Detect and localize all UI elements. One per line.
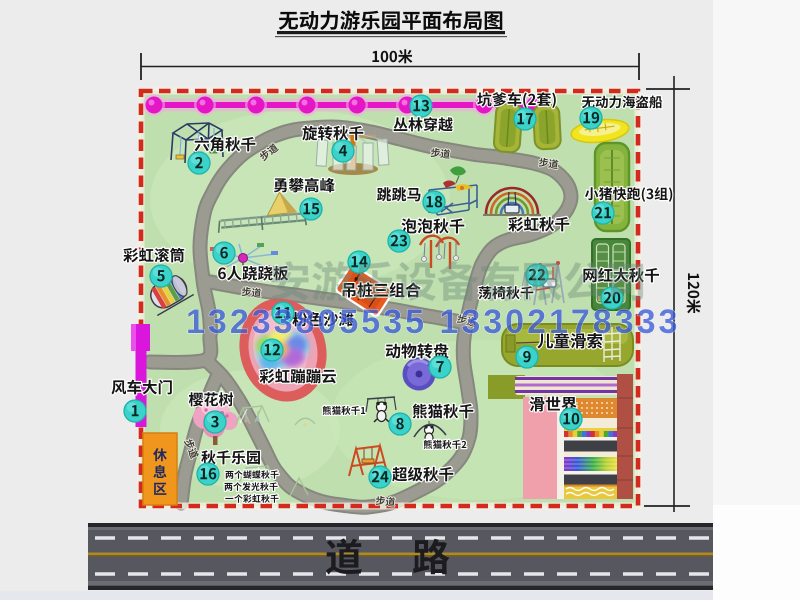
svg-text:13233805535 13302178333: 13233805535 13302178333 (186, 303, 680, 341)
